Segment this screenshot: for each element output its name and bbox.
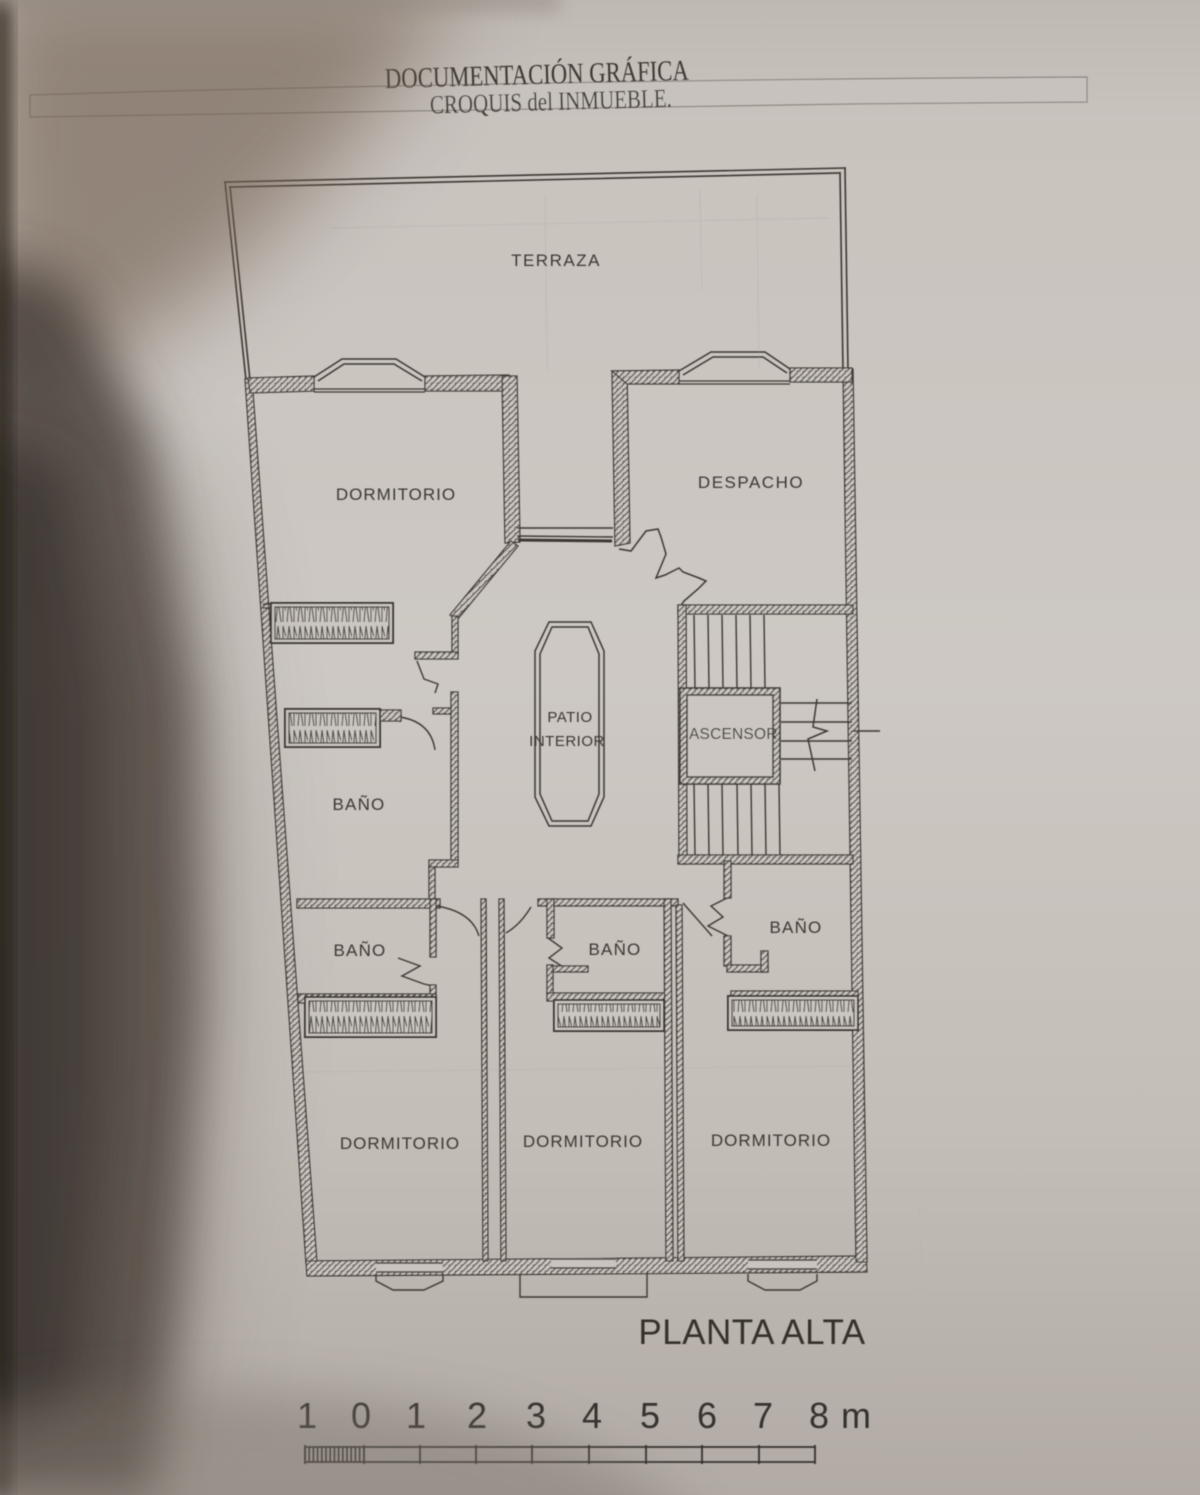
- svg-text:7: 7: [753, 1395, 773, 1436]
- svg-text:6: 6: [697, 1395, 717, 1436]
- svg-text:DORMITORIO: DORMITORIO: [340, 1134, 460, 1153]
- svg-text:DESPACHO: DESPACHO: [698, 473, 804, 492]
- svg-text:BAÑO: BAÑO: [770, 918, 823, 937]
- svg-text:TERRAZA: TERRAZA: [511, 251, 601, 270]
- svg-text:DORMITORIO: DORMITORIO: [711, 1131, 831, 1150]
- svg-text:PATIO: PATIO: [547, 709, 592, 726]
- svg-text:DORMITORIO: DORMITORIO: [336, 485, 456, 504]
- svg-text:3: 3: [526, 1395, 546, 1436]
- svg-text:BAÑO: BAÑO: [333, 795, 386, 814]
- svg-text:5: 5: [640, 1395, 660, 1436]
- svg-text:INTERIOR: INTERIOR: [529, 733, 605, 750]
- svg-text:BAÑO: BAÑO: [589, 940, 642, 959]
- svg-text:4: 4: [582, 1395, 602, 1436]
- svg-text:m: m: [841, 1395, 871, 1436]
- svg-text:BAÑO: BAÑO: [334, 941, 387, 960]
- svg-text:ASCENSOR: ASCENSOR: [689, 726, 778, 743]
- svg-text:8: 8: [809, 1395, 829, 1436]
- svg-text:PLANTA ALTA: PLANTA ALTA: [638, 1313, 865, 1352]
- svg-text:DORMITORIO: DORMITORIO: [523, 1132, 643, 1151]
